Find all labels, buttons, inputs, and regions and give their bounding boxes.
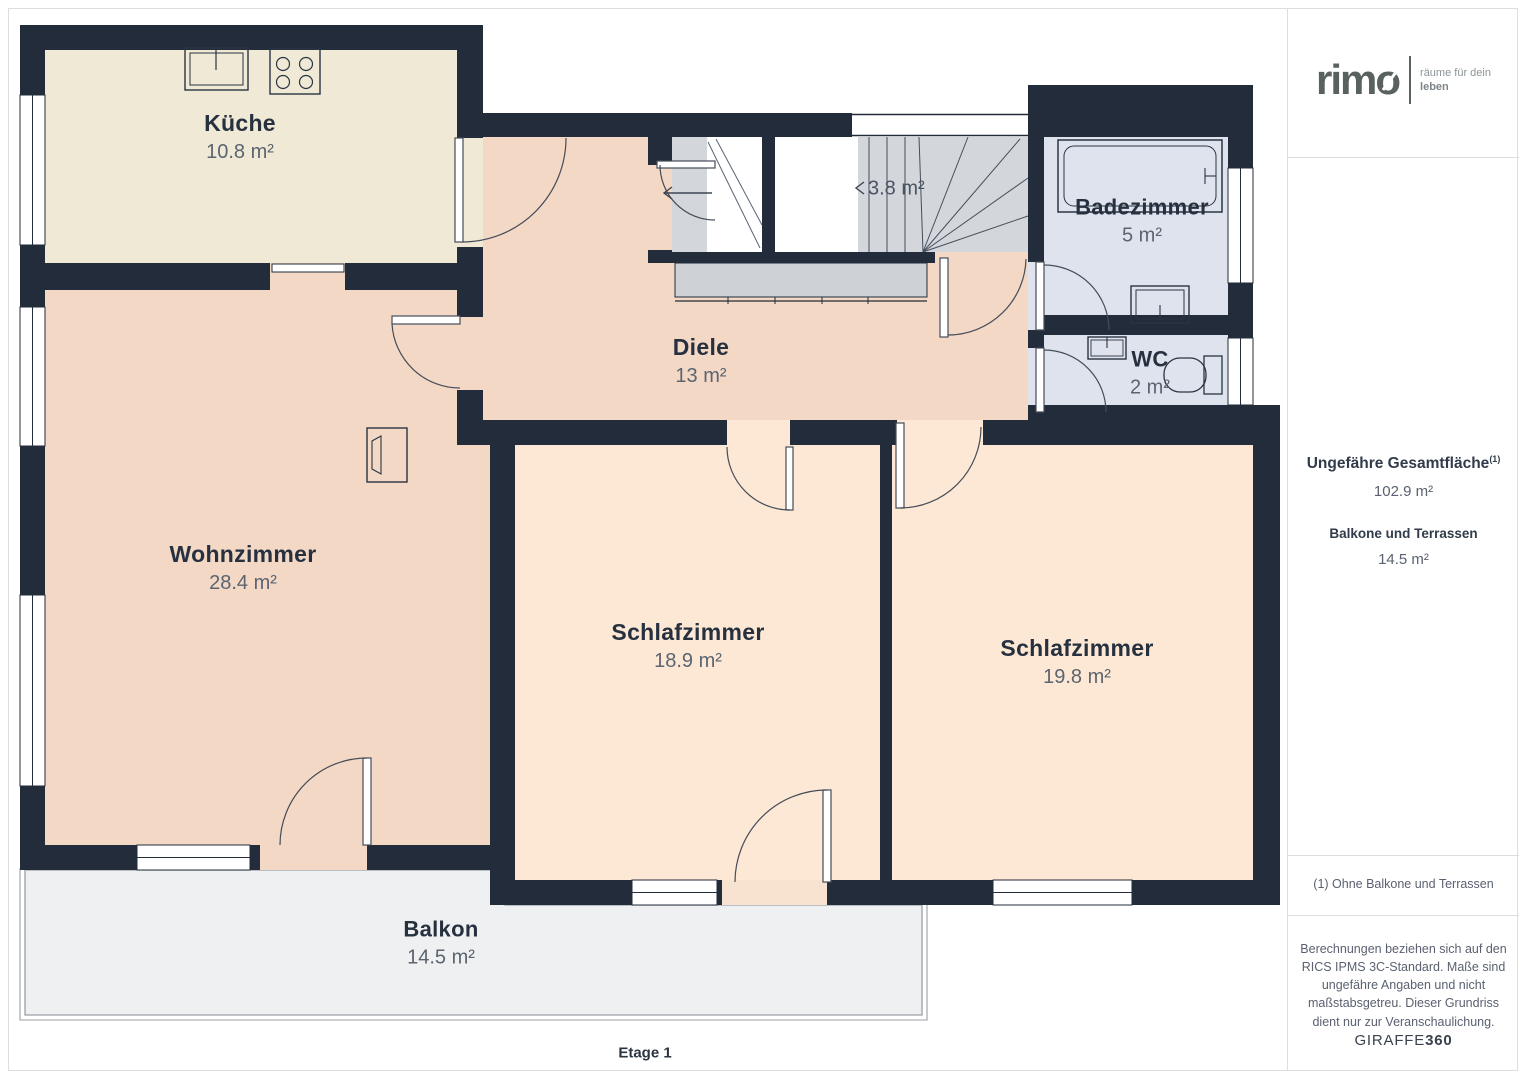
room-floors bbox=[45, 50, 1253, 905]
room-name: Schlafzimmer bbox=[611, 619, 764, 646]
room-name: Badezimmer bbox=[1075, 195, 1209, 221]
logo-divider-bar bbox=[1409, 56, 1411, 104]
logo-tagline-line1: räume für dein bbox=[1420, 66, 1491, 80]
floor-level-label: Etage 1 bbox=[618, 1045, 671, 1062]
logo-tagline: räume für dein leben bbox=[1420, 66, 1491, 95]
rimo-logo-wordmark: rimo bbox=[1316, 59, 1399, 101]
room-area: 10.8 m² bbox=[204, 141, 276, 164]
footnote-text: (1) Ohne Balkone und Terrassen bbox=[1288, 877, 1519, 891]
credit-brand: GIRAFFE bbox=[1354, 1032, 1425, 1049]
room-label-kueche: Küche 10.8 m² bbox=[204, 110, 276, 164]
sidebar-divider-top bbox=[1288, 157, 1519, 158]
room-name: Wohnzimmer bbox=[170, 541, 317, 568]
room-area: 19.8 m² bbox=[1000, 666, 1153, 689]
room-label-wohnzimmer: Wohnzimmer 28.4 m² bbox=[170, 541, 317, 595]
giraffe360-credit: GIRAFFE360 bbox=[1288, 1032, 1519, 1049]
total-area-value: 102.9 m² bbox=[1288, 483, 1519, 500]
floor-plan-drawing bbox=[0, 0, 1287, 1080]
room-label-badezimmer: Badezimmer 5 m² bbox=[1075, 195, 1209, 248]
sidebar-divider-footnote-bottom bbox=[1288, 915, 1519, 916]
room-area: 5 m² bbox=[1075, 225, 1209, 248]
room-name: Balkon bbox=[403, 917, 478, 943]
balcony-area-label: Balkone und Terrassen bbox=[1288, 526, 1519, 541]
room-label-schlafzimmer-1: Schlafzimmer 18.9 m² bbox=[611, 619, 764, 673]
room-name: Schlafzimmer bbox=[1000, 635, 1153, 662]
room-name: Küche bbox=[204, 110, 276, 137]
staircase-area-label: 3.8 m² bbox=[868, 178, 925, 201]
credit-suffix: 360 bbox=[1425, 1032, 1452, 1049]
room-label-wc: WC 2 m² bbox=[1130, 347, 1170, 400]
floorplan-page: Küche 10.8 m² Wohnzimmer 28.4 m² Diele 1… bbox=[0, 0, 1527, 1080]
info-sidebar: rimo räume für dein leben Ungefähre Gesa… bbox=[1287, 8, 1519, 1071]
room-area: 13 m² bbox=[673, 365, 729, 388]
room-label-schlafzimmer-2: Schlafzimmer 19.8 m² bbox=[1000, 635, 1153, 689]
room-area: 28.4 m² bbox=[170, 572, 317, 595]
logo-o-slash-icon bbox=[1382, 71, 1397, 90]
footnote-marker: (1) bbox=[1489, 454, 1500, 464]
balcony-area-value: 14.5 m² bbox=[1288, 551, 1519, 568]
brand-logo: rimo räume für dein leben bbox=[1288, 56, 1519, 104]
room-label-diele: Diele 13 m² bbox=[673, 334, 729, 388]
room-label-balkon: Balkon 14.5 m² bbox=[403, 917, 478, 970]
room-name: Diele bbox=[673, 334, 729, 361]
room-area: 14.5 m² bbox=[403, 947, 478, 970]
room-area: 18.9 m² bbox=[611, 650, 764, 673]
area-summary: Ungefähre Gesamtfläche(1) 102.9 m² Balko… bbox=[1288, 454, 1519, 568]
room-name: WC bbox=[1130, 347, 1170, 373]
sidebar-divider-footnote-top bbox=[1288, 855, 1519, 856]
total-area-label: Ungefähre Gesamtfläche(1) bbox=[1288, 454, 1519, 473]
room-area: 2 m² bbox=[1130, 377, 1170, 400]
logo-tagline-line2: leben bbox=[1420, 81, 1449, 93]
disclaimer-text: Berechnungen beziehen sich auf den RICS … bbox=[1296, 940, 1512, 1031]
floor-plan: Küche 10.8 m² Wohnzimmer 28.4 m² Diele 1… bbox=[0, 0, 1287, 1080]
